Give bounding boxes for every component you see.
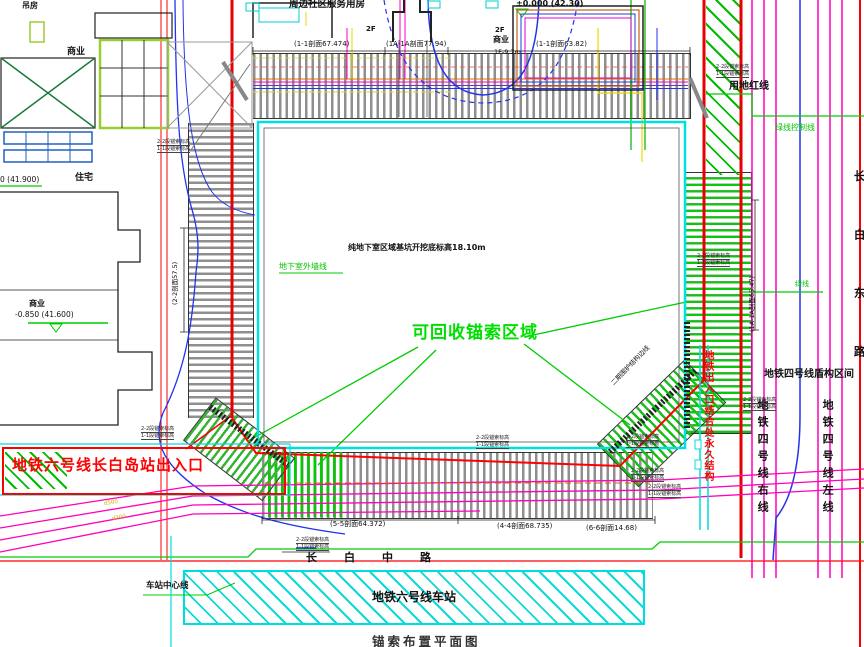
floor-label-1f: 1F-9.7m bbox=[494, 49, 521, 56]
section-label-top-1: (1-1剖面67.474) bbox=[294, 41, 349, 49]
land-red-line-label: 用地红线 bbox=[729, 81, 769, 92]
section-label-bottom-3: (6-6剖面14.68) bbox=[586, 525, 637, 533]
anchor-note-stack: 2-2段锚索标高1-1段锚索标高 bbox=[141, 426, 174, 440]
bottom-road-name: 长白中路 bbox=[306, 552, 458, 564]
drawing-canvas: 地铁六号线车站 bbox=[0, 0, 864, 647]
basement-wall-line-note: 地下室外墙线 bbox=[279, 263, 327, 272]
section-label-top-2: (1A-1A剖面77.94) bbox=[386, 41, 446, 49]
section-label-left-rotated: (2-2剖面57.5) bbox=[172, 262, 179, 305]
section-label-top-3: (1-1剖面63.82) bbox=[536, 41, 587, 49]
commercial-label-west: 商业 bbox=[67, 48, 85, 58]
commercial-label-southwest: 商业 bbox=[29, 300, 45, 309]
anchor-note-stack: 2-2段锚索标高1-1段锚索标高 bbox=[697, 253, 730, 267]
metro4-shield-section-label: 地铁四号线盾构区间 bbox=[764, 369, 854, 380]
pit-bottom-elevation-note: 纯地下室区域基坑开挖底标高18.10m bbox=[348, 244, 486, 253]
community-building-label: 周边社区服务用房 bbox=[289, 0, 365, 10]
anchor-note-stack: 2-2段锚索标高1-1段锚索标高 bbox=[631, 468, 664, 482]
metro4-right-track-label: 地铁四号线右线 bbox=[756, 399, 768, 539]
green-line-label-2: 绿线 bbox=[795, 281, 809, 289]
station-centerline-label: 车站中心线 bbox=[146, 582, 189, 591]
elevation-west: 0 (41.900) bbox=[0, 176, 39, 184]
drawing-title: 锚索布置平面图 bbox=[372, 635, 481, 647]
floor-label-2f-a: 2F bbox=[366, 26, 376, 34]
metro4-left-track-label: 地铁四号线左线 bbox=[821, 399, 833, 539]
left-buildings bbox=[0, 13, 252, 425]
section-label-right-rotated: (1A-1A剖面65.47) bbox=[749, 276, 756, 332]
metro-exit-label: 地铁六号线长白岛站出入口 bbox=[12, 457, 204, 474]
anchor-note-stack: 2-2段锚索标高1-1段锚索标高 bbox=[716, 64, 749, 78]
residential-label: 住宅 bbox=[75, 174, 93, 184]
anchor-note-stack: 2-2段锚索标高1-1段锚索标高 bbox=[157, 139, 190, 153]
elevation-southwest: -0.850 (41.600) bbox=[15, 311, 74, 319]
east-boundary-and-metro4 bbox=[704, 0, 860, 647]
anchor-note-stack: 2-2段锚索标高1-1段锚索标高 bbox=[476, 435, 509, 449]
top-utility-lines bbox=[253, 0, 688, 162]
anchor-note-stack: 2-2段锚索标高1-1段锚索标高 bbox=[626, 434, 659, 448]
green-control-line-label: 绿线控制线 bbox=[775, 124, 815, 133]
small-house-label: 吊房 bbox=[22, 2, 38, 11]
anchor-note-stack: 2-2段锚索标高1-1段锚索标高 bbox=[743, 397, 776, 411]
commercial-label-top: 商业 bbox=[493, 36, 509, 45]
section-label-bottom-2: (4-4剖面68.735) bbox=[497, 523, 552, 531]
anchor-note-stack: 2-2段锚索标高1-1段锚索标高 bbox=[296, 537, 329, 551]
anchor-note-stack: 2-2段锚索标高1-1段锚索标高 bbox=[648, 484, 681, 498]
recyclable-anchor-zone-label: 可回收锚索区域 bbox=[412, 324, 538, 343]
station-entrance-passage bbox=[0, 345, 708, 647]
elevation-northeast: ±0.000 (42.30) bbox=[516, 0, 583, 9]
east-road-name: 长白东路 bbox=[853, 170, 864, 420]
exit-structure-note: 地铁出入口结合处永久结构 bbox=[702, 350, 713, 490]
floor-label-2f-b: 2F bbox=[495, 27, 505, 35]
section-label-bottom-1: (5-5剖面64.372) bbox=[330, 521, 385, 529]
